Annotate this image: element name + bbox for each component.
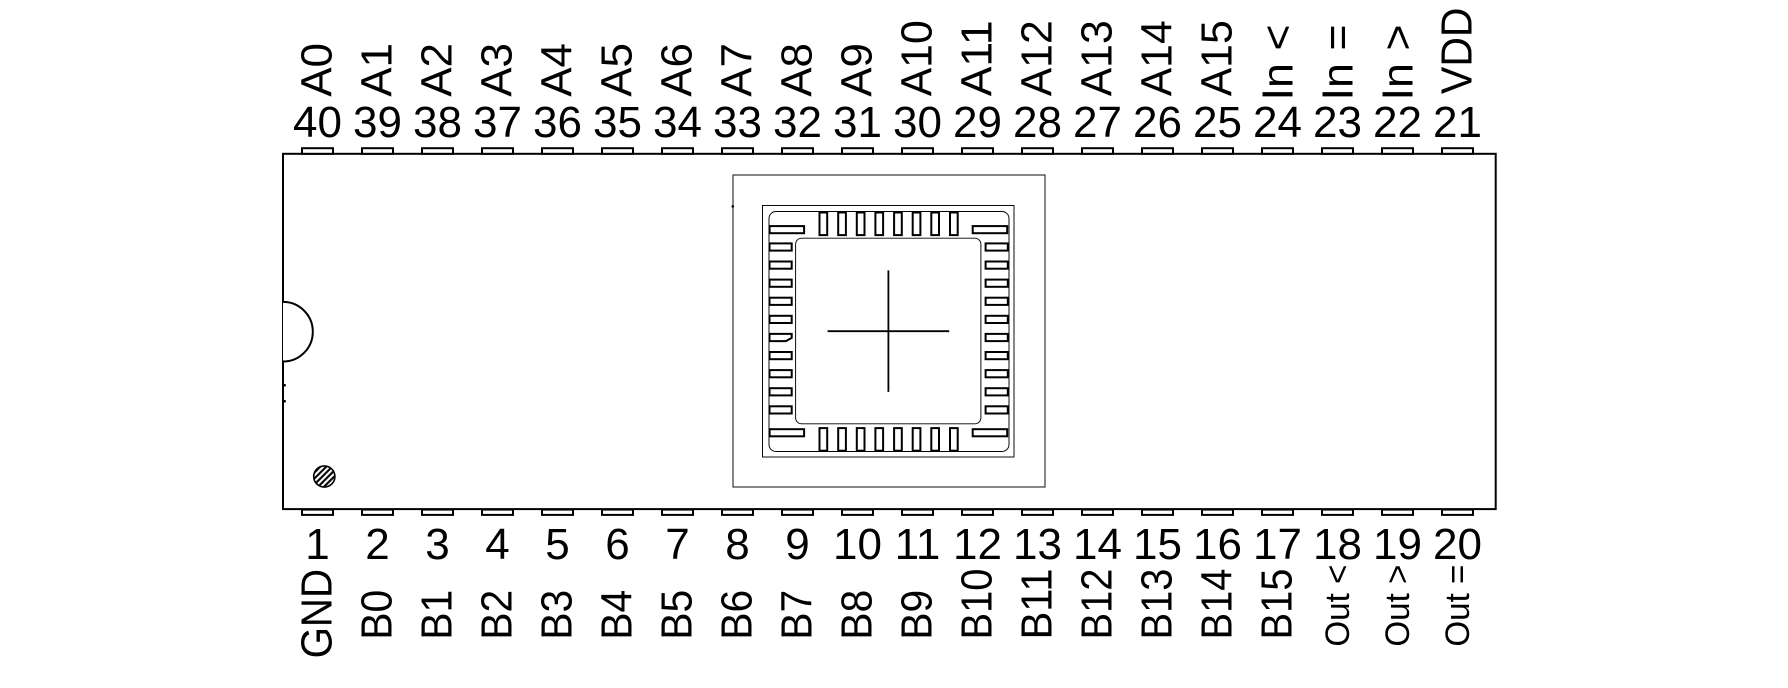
svg-text:A5: A5: [593, 43, 642, 97]
svg-text:B4: B4: [593, 590, 642, 640]
svg-text:B10: B10: [953, 569, 1002, 640]
svg-text:A4: A4: [533, 43, 582, 97]
svg-text:B0: B0: [353, 590, 402, 640]
svg-text:13: 13: [1013, 520, 1062, 569]
svg-text:11: 11: [895, 520, 941, 569]
svg-text:B12: B12: [1073, 569, 1122, 640]
svg-text:A11: A11: [953, 20, 1002, 96]
svg-text:28: 28: [1013, 98, 1062, 147]
svg-text:29: 29: [953, 98, 1002, 147]
svg-text:B15: B15: [1253, 569, 1302, 640]
svg-text:23: 23: [1313, 98, 1362, 147]
svg-text:10: 10: [833, 520, 882, 569]
svg-text:21: 21: [1433, 98, 1482, 147]
svg-text:A8: A8: [773, 43, 822, 97]
svg-text:17: 17: [1253, 520, 1302, 569]
svg-text:A9: A9: [833, 43, 882, 97]
svg-text:35: 35: [593, 98, 642, 147]
svg-text:22: 22: [1373, 98, 1422, 147]
svg-text:9: 9: [785, 520, 809, 569]
svg-text:Out =: Out =: [1439, 565, 1477, 647]
svg-text:B14: B14: [1193, 569, 1242, 640]
svg-text:In >: In >: [1374, 25, 1423, 101]
svg-text:38: 38: [413, 98, 462, 147]
svg-text:1: 1: [305, 520, 329, 569]
svg-text:34: 34: [653, 98, 702, 147]
svg-text:24: 24: [1253, 98, 1302, 147]
svg-text:In =: In =: [1314, 25, 1363, 101]
svg-text:19: 19: [1373, 520, 1422, 569]
svg-text:7: 7: [665, 520, 689, 569]
svg-text:3: 3: [425, 520, 449, 569]
svg-text:A12: A12: [1013, 20, 1062, 96]
svg-text:8: 8: [725, 520, 749, 569]
svg-text:B2: B2: [473, 590, 522, 640]
svg-text:VDD: VDD: [1433, 8, 1482, 95]
svg-text:A6: A6: [653, 43, 702, 97]
svg-text:A1: A1: [353, 43, 402, 97]
svg-text:26: 26: [1133, 98, 1182, 147]
svg-text:36: 36: [533, 98, 582, 147]
svg-text:B7: B7: [773, 590, 822, 640]
svg-text:B8: B8: [833, 590, 882, 640]
svg-text:12: 12: [953, 520, 1002, 569]
svg-text:B11: B11: [1013, 569, 1062, 640]
svg-text:A14: A14: [1133, 20, 1182, 96]
svg-text:37: 37: [473, 98, 522, 147]
svg-text:A10: A10: [893, 20, 942, 96]
svg-text:6: 6: [605, 520, 629, 569]
svg-text:B9: B9: [893, 590, 942, 640]
svg-text:A13: A13: [1073, 20, 1122, 96]
svg-text:B13: B13: [1133, 569, 1182, 640]
svg-text:31: 31: [833, 98, 882, 147]
svg-text:15: 15: [1133, 520, 1182, 569]
svg-text:32: 32: [773, 98, 822, 147]
svg-text:B3: B3: [533, 590, 582, 640]
svg-text:20: 20: [1433, 520, 1482, 569]
svg-text:39: 39: [353, 98, 402, 147]
svg-text:27: 27: [1073, 98, 1122, 147]
svg-text:Out <: Out <: [1319, 565, 1357, 647]
svg-text:A15: A15: [1193, 20, 1242, 96]
svg-text:33: 33: [713, 98, 762, 147]
svg-text:5: 5: [545, 520, 569, 569]
svg-text:B1: B1: [413, 590, 462, 640]
svg-text:4: 4: [485, 520, 509, 569]
svg-text:A2: A2: [413, 43, 462, 97]
svg-text:A0: A0: [293, 43, 342, 97]
svg-text:Out >: Out >: [1379, 565, 1417, 647]
svg-text:18: 18: [1313, 520, 1362, 569]
svg-text:14: 14: [1073, 520, 1122, 569]
svg-text:B5: B5: [653, 590, 702, 640]
svg-text:2: 2: [365, 520, 389, 569]
svg-text:16: 16: [1193, 520, 1242, 569]
svg-text:A3: A3: [473, 43, 522, 97]
svg-text:40: 40: [293, 98, 342, 147]
svg-text:In <: In <: [1254, 25, 1303, 101]
svg-text:A7: A7: [713, 43, 762, 97]
svg-text:GND: GND: [293, 569, 342, 659]
svg-text:B6: B6: [713, 590, 762, 640]
svg-text:30: 30: [893, 98, 942, 147]
svg-text:25: 25: [1193, 98, 1242, 147]
